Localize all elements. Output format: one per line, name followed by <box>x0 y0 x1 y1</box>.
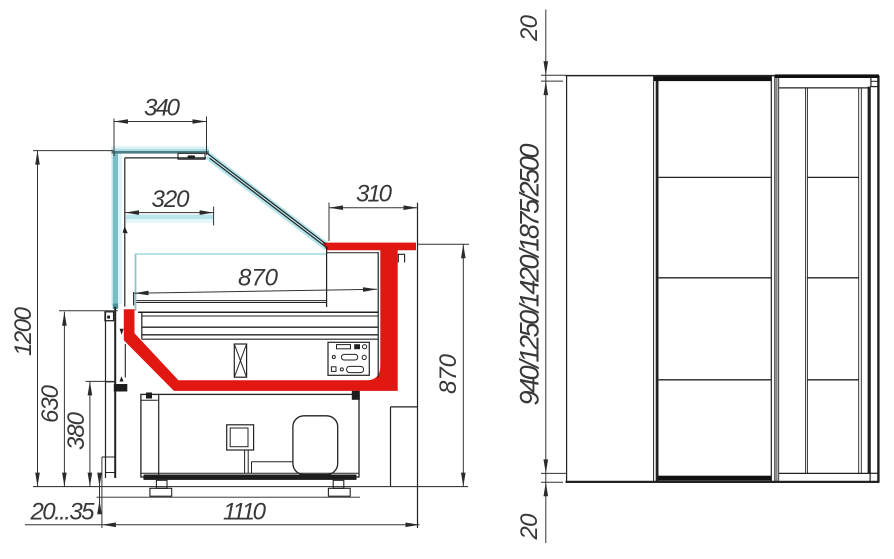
svg-text:940/1250/1420/1875/2500: 940/1250/1420/1875/2500 <box>515 144 545 406</box>
svg-text:870: 870 <box>435 353 462 394</box>
svg-text:1110: 1110 <box>223 499 267 526</box>
svg-text:20: 20 <box>516 513 543 541</box>
svg-text:20: 20 <box>516 14 543 42</box>
svg-text:380: 380 <box>63 411 90 450</box>
svg-text:1200: 1200 <box>10 306 37 356</box>
svg-text:20...35: 20...35 <box>30 499 96 526</box>
svg-text:310: 310 <box>356 181 393 208</box>
svg-text:320: 320 <box>152 186 191 213</box>
svg-text:630: 630 <box>37 384 64 423</box>
svg-text:340: 340 <box>144 95 181 122</box>
svg-text:870: 870 <box>238 265 279 292</box>
